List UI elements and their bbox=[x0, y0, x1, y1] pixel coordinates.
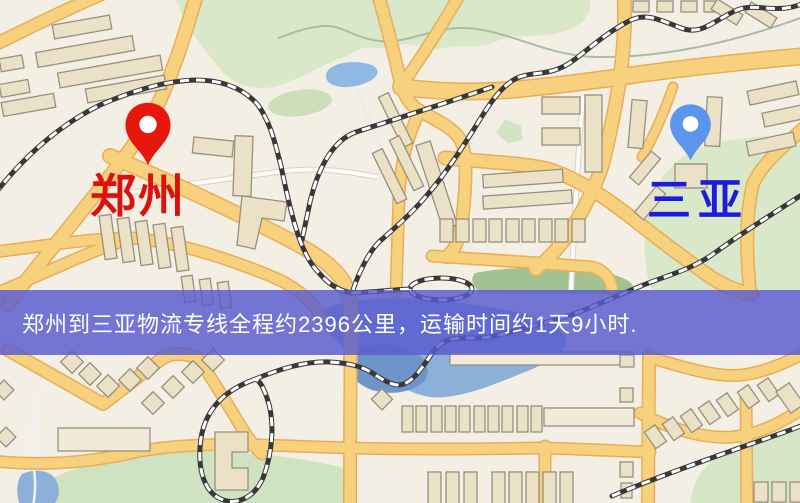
route-banner-text: 郑州到三亚物流专线全程约2396公里，运输时间约1天9小时. bbox=[0, 307, 638, 339]
map-canvas: 郑州 三亚 郑州到三亚物流专线全程约2396公里，运输时间约1天9小时. bbox=[0, 0, 800, 503]
route-banner: 郑州到三亚物流专线全程约2396公里，运输时间约1天9小时. bbox=[0, 290, 800, 355]
destination-pin-icon[interactable] bbox=[667, 102, 714, 163]
origin-label: 郑州 bbox=[84, 172, 192, 220]
origin-pin-icon[interactable] bbox=[122, 100, 174, 168]
destination-label: 三亚 bbox=[638, 178, 758, 224]
map-background bbox=[0, 0, 800, 503]
